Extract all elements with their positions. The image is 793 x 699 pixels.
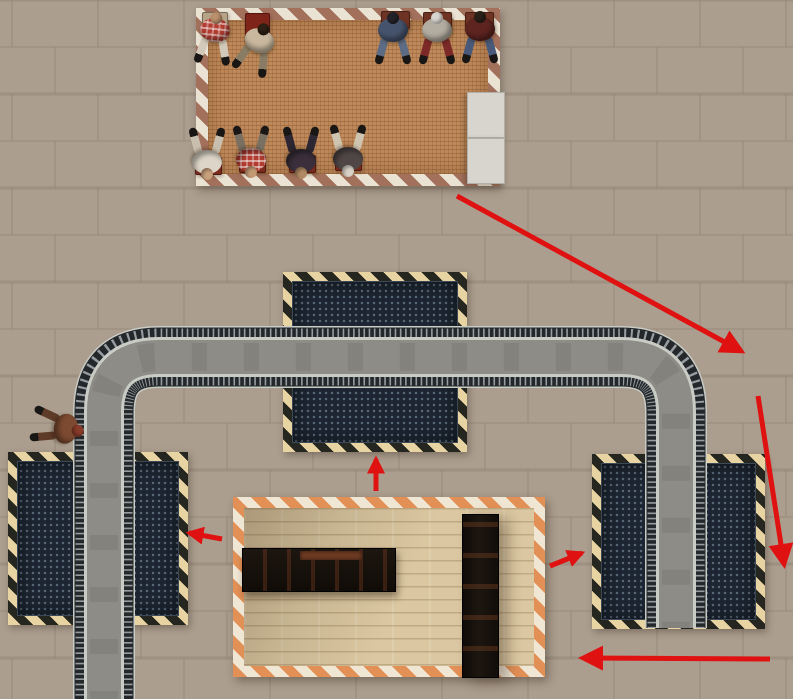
flow-arrow [550,553,582,566]
flow-arrow [457,196,741,351]
flow-arrow [583,658,770,659]
flow-arrow [189,533,222,539]
game-viewport [0,0,793,699]
flow-arrow [758,396,784,564]
flow-arrows-overlay [0,0,793,699]
